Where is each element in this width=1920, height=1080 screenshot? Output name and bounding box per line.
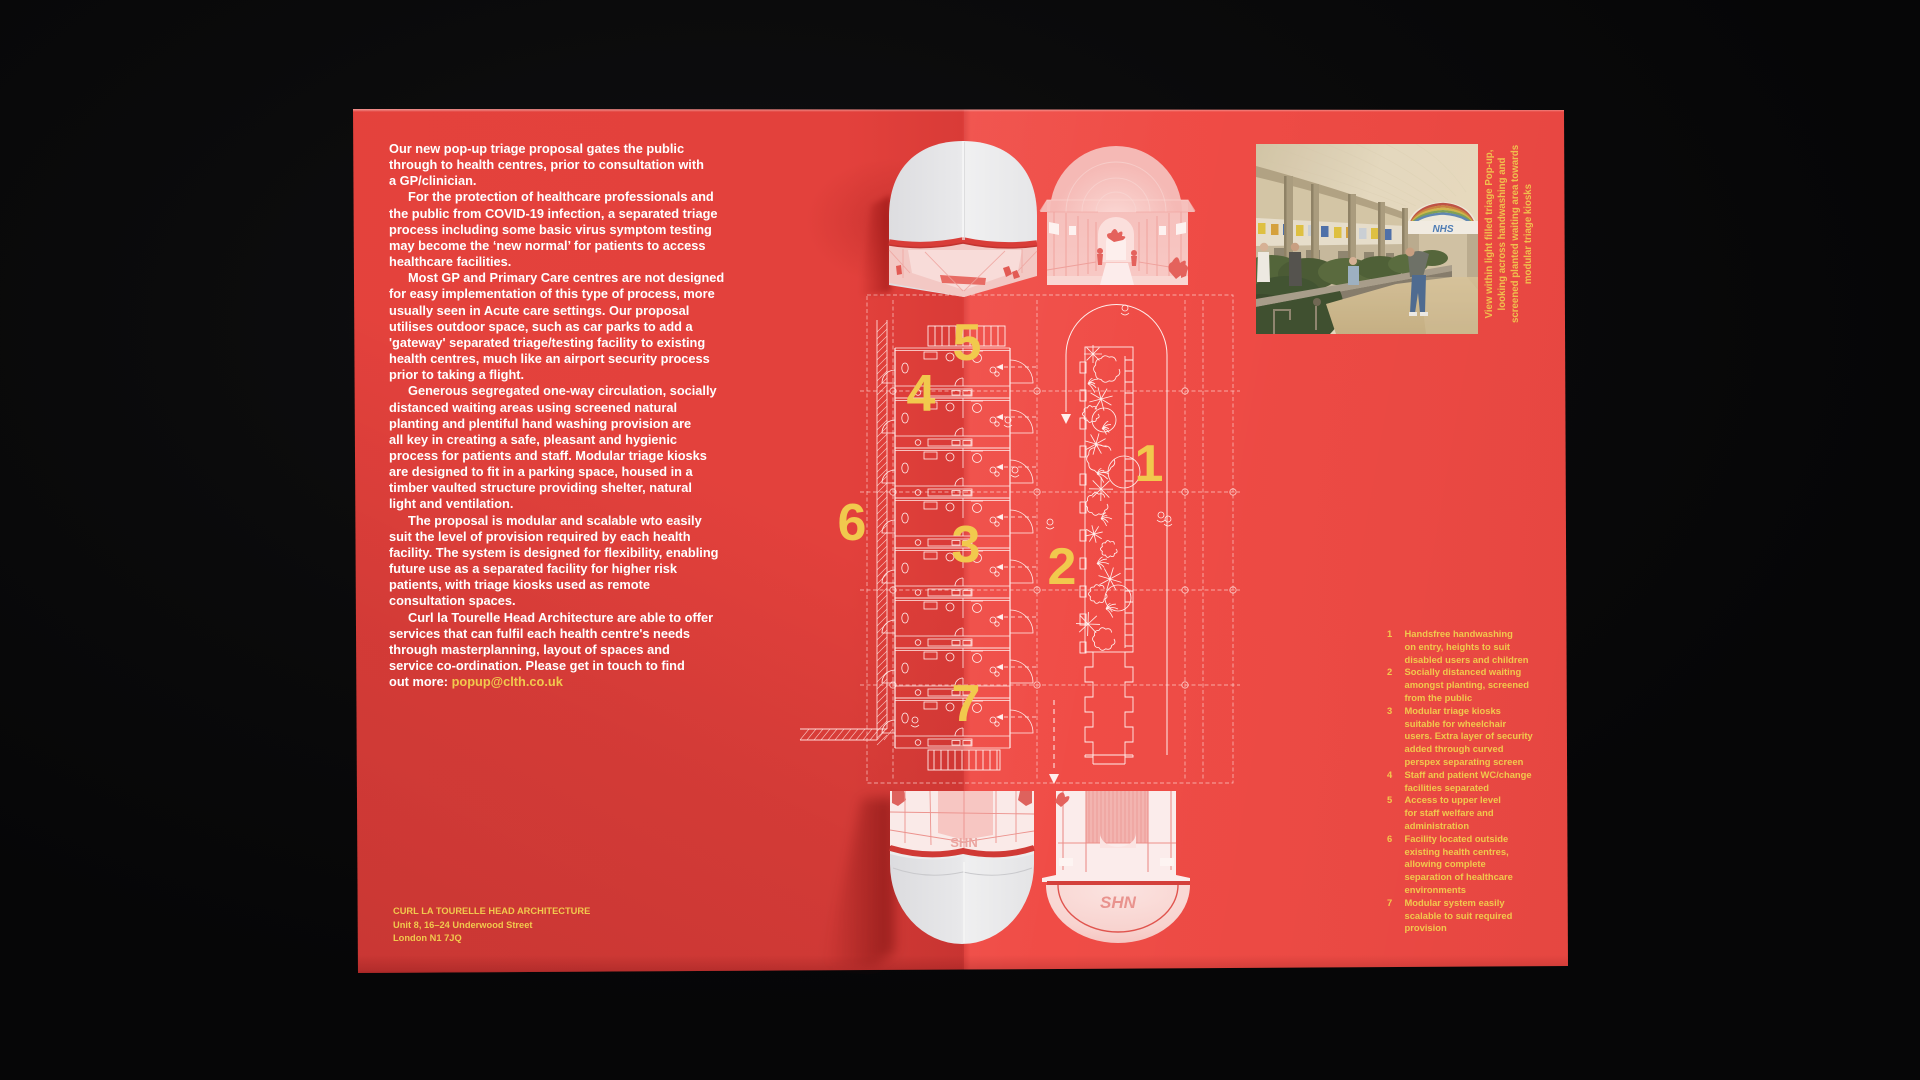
svg-text:1: 1 (1135, 435, 1164, 493)
svg-text:6: 6 (838, 494, 867, 552)
svg-text:SHN: SHN (1100, 893, 1137, 912)
svg-text:2: 2 (1048, 538, 1077, 596)
svg-text:7: 7 (952, 675, 981, 733)
svg-text:5: 5 (953, 314, 982, 372)
svg-text:3: 3 (952, 516, 981, 574)
svg-text:SHN: SHN (950, 835, 977, 850)
svg-text:4: 4 (907, 365, 936, 423)
